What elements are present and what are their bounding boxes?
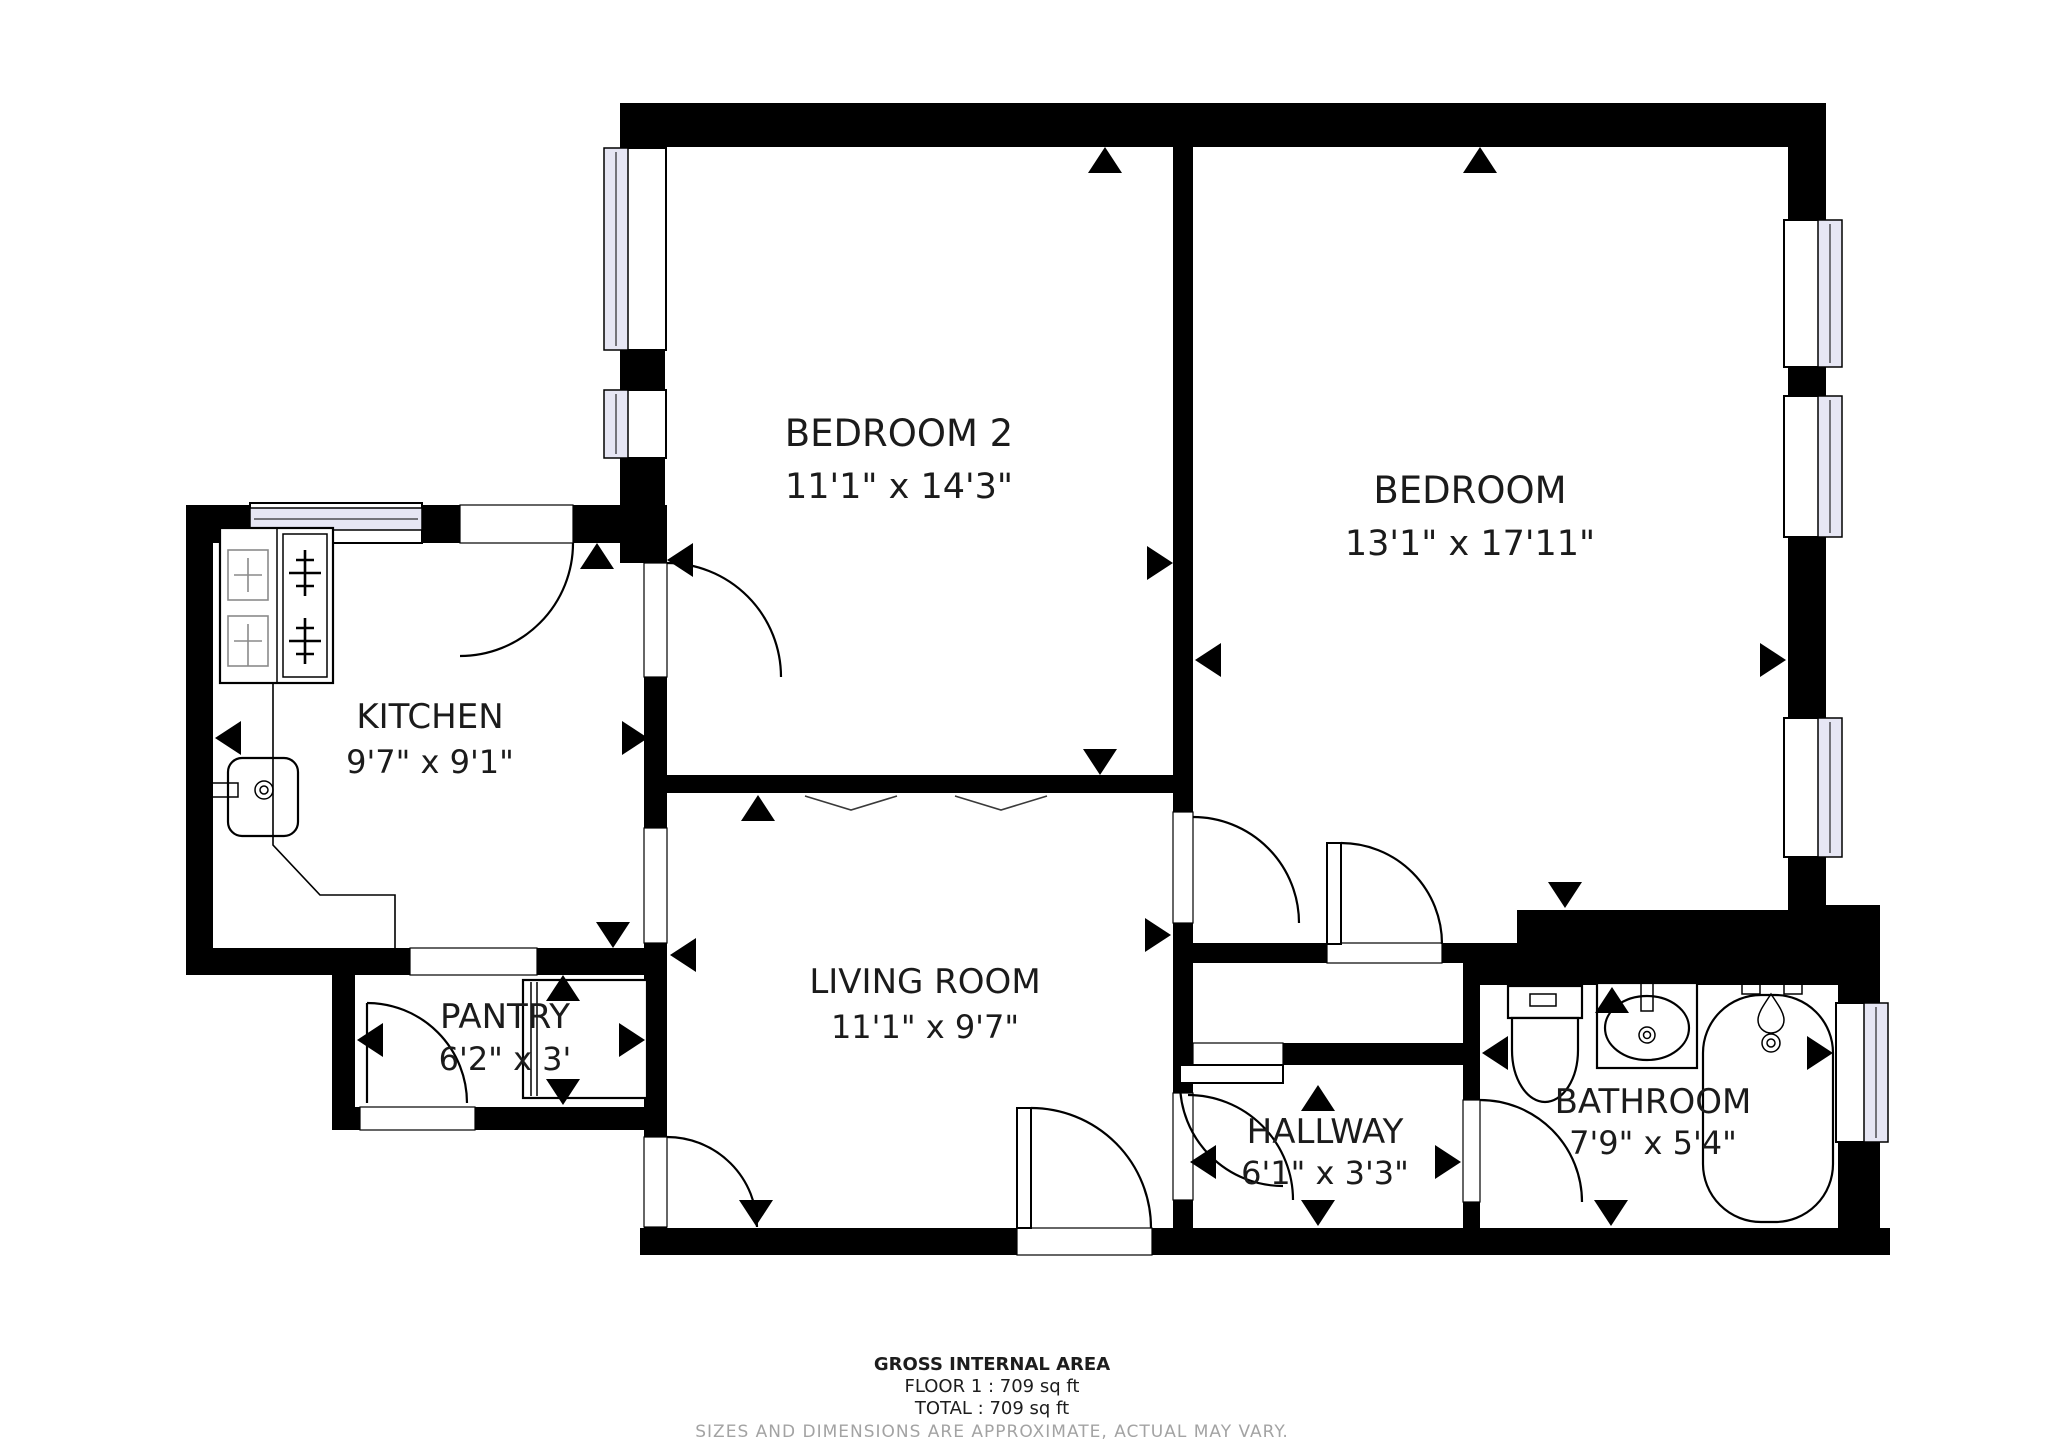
dimension-arrow-down (596, 922, 630, 948)
door-opening (1173, 812, 1193, 923)
dimension-arrow-down (1594, 1200, 1628, 1226)
dimension-arrow-right (1760, 643, 1786, 677)
bifold-door-icon (805, 796, 897, 810)
door-opening (1463, 1100, 1480, 1202)
door-swing-bedroom (1341, 843, 1442, 944)
dimension-arrow-left (357, 1023, 383, 1057)
window-icon (1836, 1003, 1888, 1142)
dimension-arrow-left (1195, 643, 1221, 677)
room-label-hallway: HALLWAY (1247, 1112, 1404, 1152)
room-label-bedroom2: BEDROOM 2 (785, 412, 1013, 455)
window-icon (1784, 718, 1842, 857)
bifold-door-icon (955, 796, 1047, 810)
room-label-living-room: LIVING ROOM (809, 962, 1040, 1002)
window-icon (604, 390, 666, 458)
dimension-arrow-left (215, 721, 241, 755)
dimension-arrow-left (667, 543, 693, 577)
wall-segment (332, 975, 355, 1130)
room-dims-bedroom2: 11'1" x 14'3" (785, 467, 1013, 507)
room-dims-pantry: 6'2" x 3' (439, 1040, 572, 1078)
wall-segment (186, 505, 213, 975)
wall-segment (662, 775, 1190, 793)
window-icon (1784, 396, 1842, 537)
stove-icon (220, 528, 333, 683)
passage-opening (360, 1107, 475, 1130)
dimension-arrow-up (580, 543, 614, 569)
footer-title: GROSS INTERNAL AREA (874, 1354, 1110, 1375)
room-label-kitchen: KITCHEN (356, 697, 503, 737)
footer-disclaimer: SIZES AND DIMENSIONS ARE APPROXIMATE, AC… (695, 1422, 1288, 1442)
dimension-arrow-up (741, 795, 775, 821)
dimension-arrow-left (1482, 1036, 1508, 1070)
door-leaf-bedroom (1327, 843, 1341, 944)
dimension-arrow-down (1301, 1200, 1335, 1226)
window-icon (1784, 220, 1842, 367)
dimension-arrow-up (1463, 147, 1497, 173)
floor-plan-page: BEDROOM 2 11'1" x 14'3" BEDROOM 13'1" x … (0, 0, 2048, 1448)
door-opening (1193, 1043, 1283, 1065)
dimension-arrow-right (1435, 1145, 1461, 1179)
room-dims-living-room: 11'1" x 9'7" (831, 1008, 1019, 1046)
door-opening (644, 563, 667, 677)
floor-plan-drawing: BEDROOM 2 11'1" x 14'3" BEDROOM 13'1" x … (0, 0, 2048, 1448)
dimension-arrow-up (1088, 147, 1122, 173)
door-opening (1327, 943, 1442, 963)
passage-opening (644, 828, 667, 943)
footer: GROSS INTERNAL AREA FLOOR 1 : 709 sq ft … (695, 1354, 1288, 1442)
room-dims-bathroom: 7'9" x 5'4" (1569, 1124, 1737, 1162)
dimension-arrow-left (1190, 1145, 1216, 1179)
dimension-arrow-left (670, 938, 696, 972)
door-swing-living-bottom (1031, 1108, 1151, 1228)
footer-total-area: TOTAL : 709 sq ft (914, 1398, 1069, 1419)
door-leaf-living-bottom (1017, 1108, 1031, 1228)
door-swing-bedroom2 (667, 563, 781, 677)
dimension-arrow-down (739, 1200, 773, 1226)
room-dims-bedroom: 13'1" x 17'11" (1345, 524, 1595, 564)
door-opening (1017, 1228, 1152, 1255)
footer-floor-area: FLOOR 1 : 709 sq ft (905, 1376, 1080, 1397)
door-leaf-hallway-top (1180, 1065, 1283, 1083)
wall-segment (620, 103, 1826, 147)
dimension-arrow-up (1301, 1085, 1335, 1111)
door-opening (460, 505, 573, 543)
room-dims-kitchen: 9'7" x 9'1" (346, 743, 514, 781)
wall-segment (1517, 910, 1840, 985)
entry-door-opening (644, 1137, 667, 1227)
room-label-bedroom: BEDROOM (1373, 469, 1566, 512)
dimension-arrow-down (1548, 882, 1582, 908)
wall-segment (640, 1228, 1890, 1255)
window-icon (604, 148, 666, 350)
room-dims-hallway: 6'1" x 3'3" (1241, 1154, 1409, 1192)
room-label-pantry: PANTRY (440, 997, 570, 1037)
dimension-arrow-right (1147, 546, 1173, 580)
room-label-bathroom: BATHROOM (1555, 1082, 1752, 1122)
door-swing-entry (667, 1137, 757, 1227)
kitchen-sink-icon (205, 758, 298, 836)
passage-opening (410, 948, 537, 975)
door-swing-kitchen (460, 543, 573, 656)
dimension-arrow-right (1145, 918, 1171, 952)
dimension-arrow-down (1083, 749, 1117, 775)
door-swing-living-bedroom (1193, 817, 1299, 923)
